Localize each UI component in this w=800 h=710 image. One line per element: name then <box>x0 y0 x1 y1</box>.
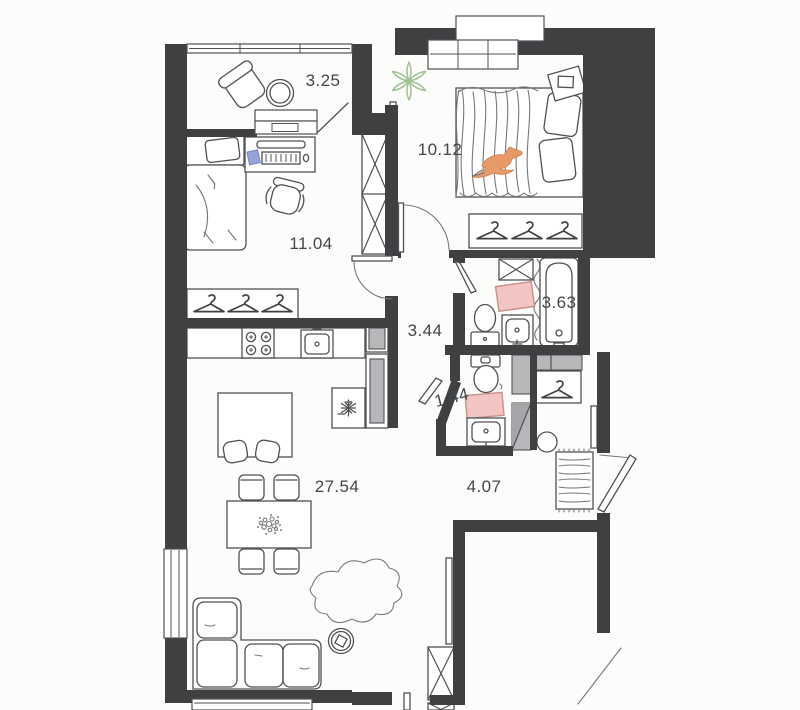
hanger-closet <box>535 371 581 403</box>
wardrobe-hangers-10 <box>469 214 582 248</box>
kitchen-counter <box>187 328 365 358</box>
entrance-door <box>597 453 636 513</box>
balcony-door-unit <box>255 110 317 134</box>
side-table <box>329 629 354 654</box>
door-bathroom <box>453 261 476 293</box>
window-living-bottom <box>192 699 312 710</box>
mirror-entry <box>591 406 597 448</box>
dining-set <box>227 475 311 574</box>
room-label-wc: 1.44 <box>433 384 471 411</box>
tall-x-wardrobe-11 <box>362 134 388 254</box>
toilet-bathroom <box>471 305 499 347</box>
room-label-balcony: 3.25 <box>306 71 341 90</box>
toilet-wc <box>471 355 502 393</box>
kitchen-sink <box>301 325 333 358</box>
door-bedroom-right <box>399 203 450 258</box>
kitchen-island <box>218 393 292 464</box>
balcony-round-table <box>267 80 294 107</box>
single-bed <box>184 134 246 250</box>
window-living-left <box>164 549 187 638</box>
stove <box>242 328 274 358</box>
wc-mat <box>465 392 504 418</box>
pouf <box>537 432 557 452</box>
washing-machine <box>499 259 533 280</box>
double-bed <box>456 87 583 197</box>
bath-mat <box>496 282 535 312</box>
tall-cabinet <box>366 325 388 428</box>
room-label-hallway: 3.44 <box>408 321 443 340</box>
shower-curtain <box>534 259 540 340</box>
room-label-bedroom-left: 11.04 <box>289 234 332 253</box>
desk <box>245 137 315 172</box>
sink-wc <box>467 418 505 449</box>
rug <box>310 559 402 623</box>
room-label-bedroom-right: 10.12 <box>418 140 463 159</box>
room-label-living-kitchen: 27.54 <box>315 477 360 496</box>
floor-plan: 3.25 10.12 11.04 3.44 3.63 1.44 27.54 4.… <box>0 0 800 710</box>
sink-bathroom <box>502 315 533 346</box>
plant-icon <box>392 62 427 100</box>
shoe-cabinet <box>535 355 582 370</box>
notepad <box>247 150 260 165</box>
duct-shaft-2 <box>512 403 531 450</box>
striped-doormat <box>556 449 593 512</box>
door-bedroom-left <box>352 256 398 299</box>
floor-plan-page: 3.25 10.12 11.04 3.44 3.63 1.44 27.54 4.… <box>0 0 800 710</box>
door-balcony <box>318 103 352 137</box>
fridge <box>332 388 365 428</box>
wardrobe-hangers-11 <box>187 289 298 320</box>
window-balcony-top <box>187 44 352 53</box>
room-label-bathroom: 3.63 <box>542 293 577 312</box>
office-chair <box>263 176 308 217</box>
balcony-armchair <box>217 59 270 112</box>
room-label-entry: 4.07 <box>467 477 502 496</box>
mirror-living <box>446 558 452 644</box>
sofa <box>193 598 321 689</box>
duct-shaft-1 <box>512 355 531 394</box>
